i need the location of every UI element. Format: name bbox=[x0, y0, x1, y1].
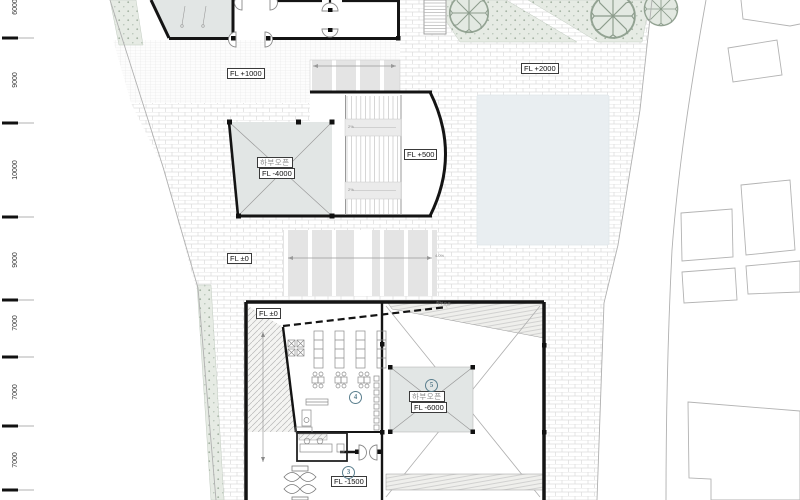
dim-label-9000a: 9000 bbox=[11, 68, 21, 92]
plan-drawing bbox=[0, 0, 800, 500]
circled-number-3: 3 bbox=[342, 466, 355, 479]
circled-number-5: 5 bbox=[425, 379, 438, 392]
bottom-building bbox=[246, 302, 547, 500]
dim-label-7000a: 7000 bbox=[11, 311, 21, 335]
label-open-below-mid-korean: 하부오픈 bbox=[257, 157, 293, 168]
slope-annotation: 4.0% bbox=[435, 253, 444, 258]
dim-label-10000: 10000 bbox=[11, 158, 21, 182]
side-stair bbox=[424, 0, 446, 34]
context-buildings bbox=[681, 0, 800, 500]
label-fl-plus-1000: FL +1000 bbox=[227, 68, 265, 79]
label-open-below-low-korean: 하부오픈 bbox=[409, 391, 445, 402]
circled-number-4: 4 bbox=[349, 391, 362, 404]
label-open-below-low-level: FL -6000 bbox=[411, 402, 447, 413]
dim-label-7000c: 7000 bbox=[11, 448, 21, 472]
dim-label-7000b: 7000 bbox=[11, 380, 21, 404]
dim-label-6000: 6000 bbox=[11, 0, 21, 19]
stair-landing-note-2: 2% bbox=[348, 187, 354, 192]
connection-band bbox=[283, 230, 437, 296]
pond bbox=[477, 95, 609, 245]
upper-ramp bbox=[310, 60, 400, 92]
label-fl-zero-lower: FL ±0 bbox=[256, 308, 281, 319]
label-open-below-mid-level: FL -4000 bbox=[259, 168, 295, 179]
label-fl-plus-2000: FL +2000 bbox=[521, 63, 559, 74]
stair-landing-note-1: 2% bbox=[348, 124, 354, 129]
dim-label-9000b: 9000 bbox=[11, 248, 21, 272]
interior-ramp-lower bbox=[386, 474, 544, 490]
site-plan-canvas: 6000 9000 10000 9000 7000 7000 7000 FL +… bbox=[0, 0, 800, 500]
label-fl-zero-upper: FL ±0 bbox=[227, 253, 252, 264]
label-fl-plus-500: FL +500 bbox=[404, 149, 437, 160]
